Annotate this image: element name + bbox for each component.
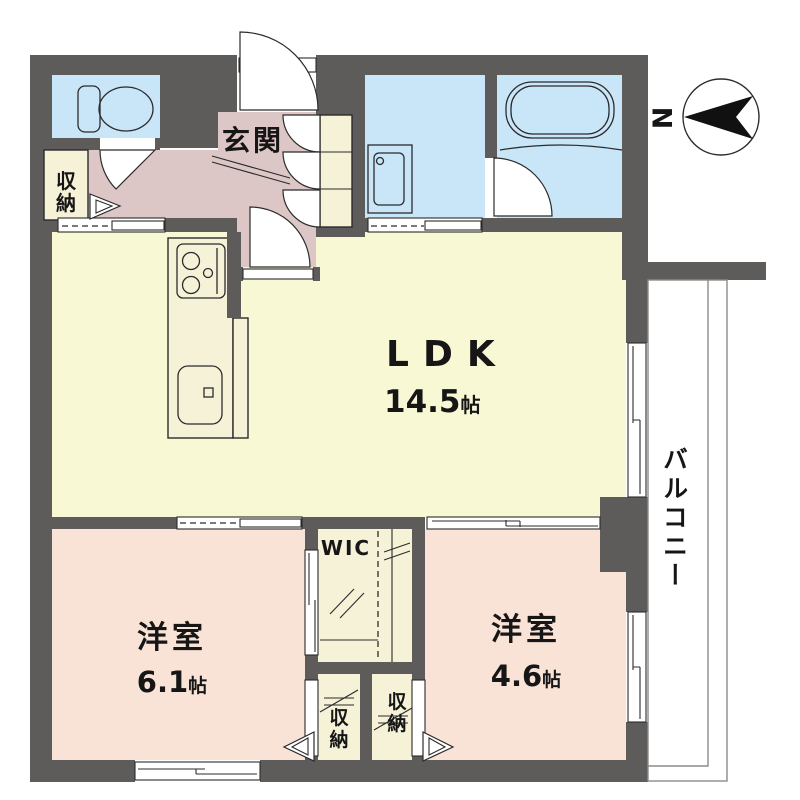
entrance-label: 玄関 [222, 124, 284, 157]
balcony-label: バルコニー [660, 446, 689, 591]
slider-hall-ldk [58, 218, 165, 232]
wic-label: WIC [321, 536, 371, 560]
closet-left-label-1: 収 [329, 707, 349, 729]
hall-closet-label-2: 納 [56, 191, 76, 215]
north-arrow-icon [684, 96, 753, 139]
slider-wic-door [305, 550, 318, 655]
slider-ldk-bedroom-left [177, 517, 302, 529]
closet-left-label-2: 納 [329, 728, 348, 751]
slider-ldk-bedroom-right [427, 517, 600, 529]
room-ldk [52, 232, 626, 517]
closet-right-label-2: 納 [387, 712, 406, 735]
window-bedroom-right-balcony [628, 612, 646, 722]
ldk-label: LDK [386, 334, 509, 375]
floor-plan-canvas: バルコニー N 玄関 収 納 LDK 14.5帖 洋室 6.1帖 洋室 4.6帖… [0, 0, 800, 800]
room-toilet [52, 75, 160, 138]
floor-plan: バルコニー N 玄関 収 納 LDK 14.5帖 洋室 6.1帖 洋室 4.6帖… [0, 0, 800, 800]
room-washroom [365, 75, 485, 218]
balcony: バルコニー [648, 280, 727, 781]
entrance-door [240, 32, 318, 110]
hall-closet-label-1: 収 [56, 169, 77, 193]
window-ldk-balcony [628, 343, 646, 497]
closet-right-label-1: 収 [387, 691, 407, 713]
compass: N [648, 79, 759, 155]
balcony-partition-wall [628, 262, 766, 280]
window-bedroom-left [135, 762, 260, 780]
shoe-cabinet-doors [283, 115, 320, 227]
bedroom-right-label: 洋室 [491, 612, 561, 648]
shoe-cabinet [320, 115, 352, 227]
kitchen-peninsula [233, 318, 248, 438]
ldk-door-threshold [243, 269, 313, 279]
kitchen-wall-stub [227, 232, 241, 318]
slider-washroom-ldk [368, 218, 482, 232]
north-label: N [648, 107, 679, 130]
bedroom-left-label: 洋室 [137, 620, 207, 656]
